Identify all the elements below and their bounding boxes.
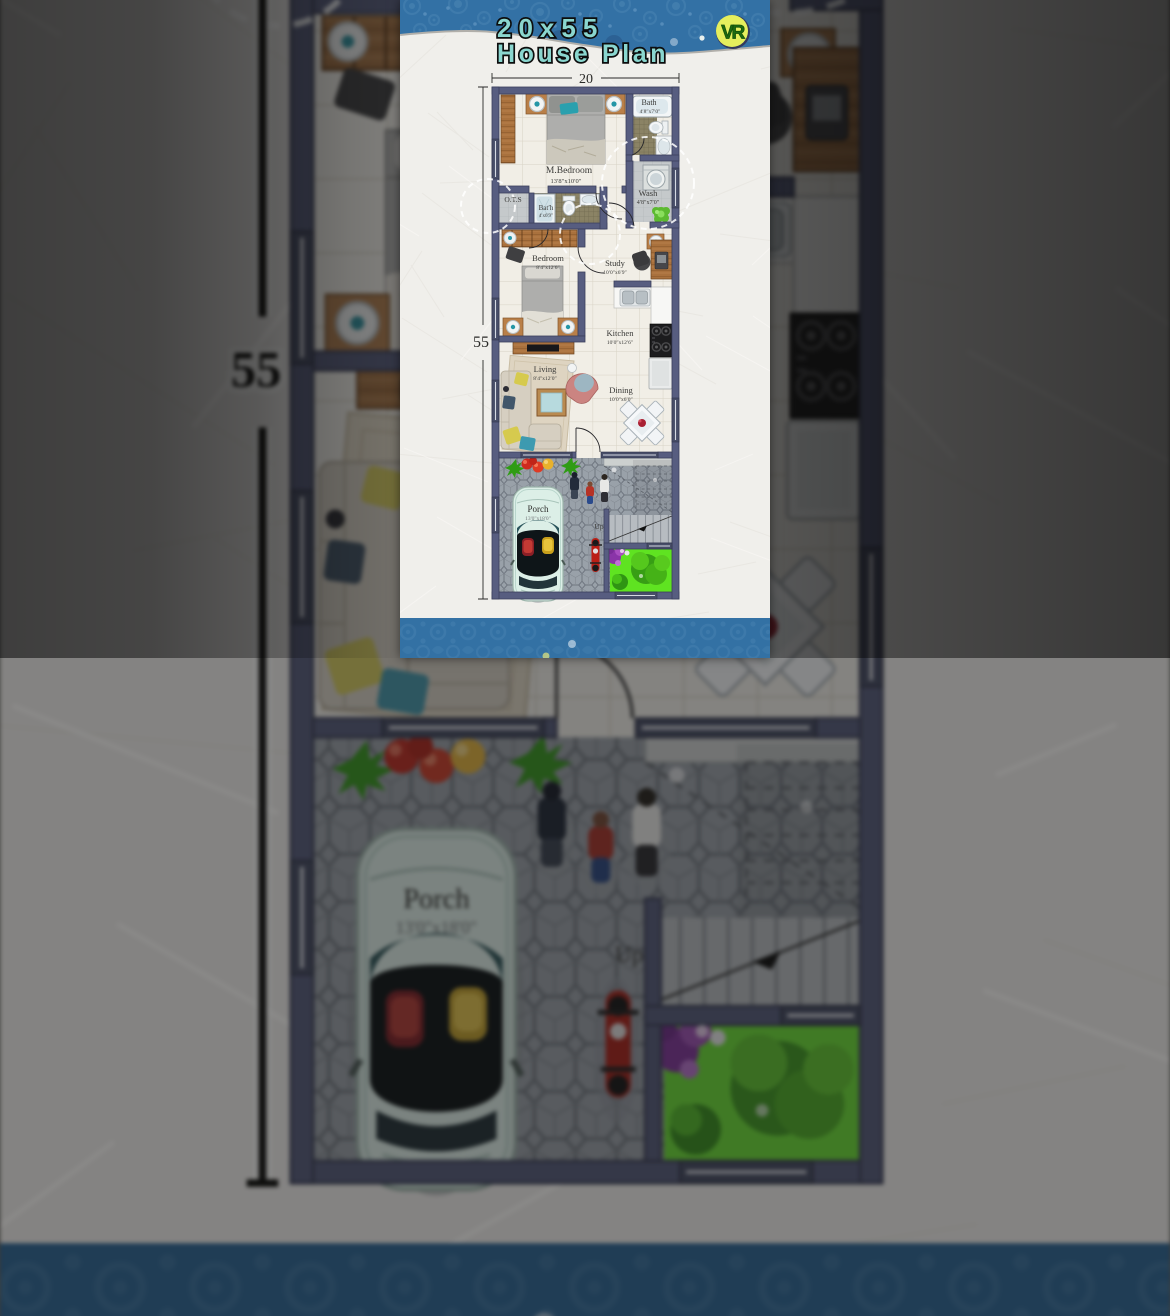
- svg-text:Porch: Porch: [528, 504, 549, 514]
- svg-text:VR: VR: [721, 23, 745, 44]
- svg-text:O.T.S: O.T.S: [504, 195, 521, 204]
- svg-text:8′4″x12′6″: 8′4″x12′6″: [536, 265, 560, 271]
- svg-text:Kitchen: Kitchen: [607, 328, 635, 338]
- svg-text:Living: Living: [534, 364, 557, 374]
- svg-text:4′8″x7′0″: 4′8″x7′0″: [637, 200, 660, 206]
- svg-text:Bedroom: Bedroom: [532, 253, 564, 263]
- svg-text:Study: Study: [605, 258, 626, 268]
- svg-text:House Plan: House Plan: [497, 40, 669, 68]
- svg-text:13′8″x10′0″: 13′8″x10′0″: [550, 178, 581, 185]
- svg-text:55: 55: [473, 334, 489, 351]
- svg-text:Bat′h: Bat′h: [539, 204, 554, 212]
- svg-text:10′0″x12′6″: 10′0″x12′6″: [607, 340, 633, 346]
- svg-text:Bath: Bath: [641, 98, 656, 107]
- svg-text:8′4″x12′0″: 8′4″x12′0″: [533, 376, 557, 382]
- svg-text:Dining: Dining: [609, 385, 633, 395]
- svg-text:20x55: 20x55: [497, 13, 604, 43]
- svg-text:4′8″x7′0″: 4′8″x7′0″: [640, 109, 661, 115]
- svg-text:20: 20: [579, 72, 593, 87]
- svg-text:4′x6′9″: 4′x6′9″: [539, 214, 553, 219]
- svg-text:Up: Up: [594, 522, 603, 531]
- svg-text:M.Bedroom: M.Bedroom: [546, 166, 593, 176]
- svg-text:Wash: Wash: [639, 188, 658, 198]
- svg-text:10′0″x6′0″: 10′0″x6′0″: [609, 397, 633, 403]
- svg-text:10′0″x6′9″: 10′0″x6′9″: [603, 270, 627, 276]
- svg-text:13'0"x18'0": 13'0"x18'0": [525, 516, 551, 522]
